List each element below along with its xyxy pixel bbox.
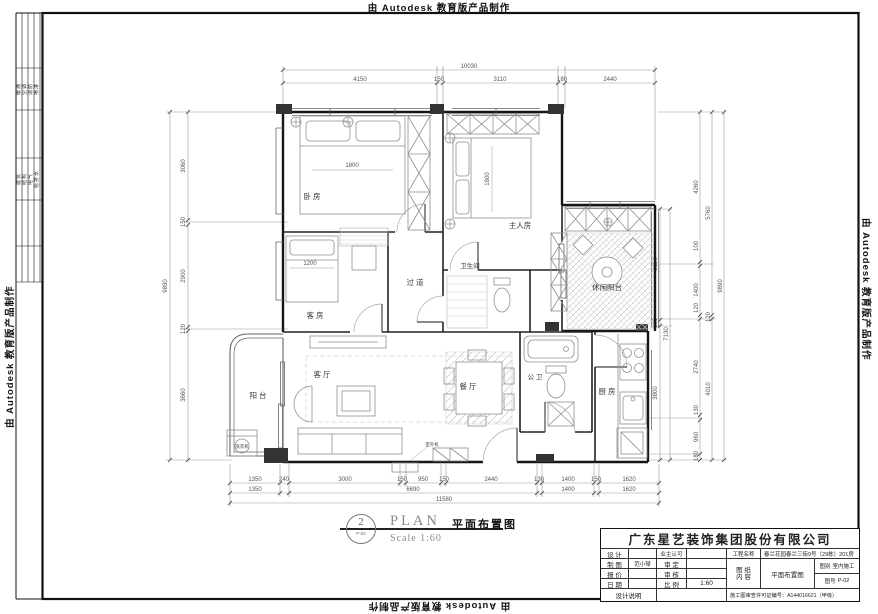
field-label: 设 计: [601, 549, 629, 559]
furniture-dim-lines: [290, 146, 492, 268]
field-value: 范小琴: [629, 559, 657, 569]
field-label: 比 例: [657, 579, 687, 589]
room-label-bedroom: 卧 房: [303, 191, 320, 201]
ac-outdoor-unit: [392, 447, 427, 472]
dim-text: 3660: [181, 388, 187, 402]
plan-title-scale: Scale 1:60: [390, 533, 442, 544]
field-label: 日 期: [601, 579, 629, 589]
drawing-content-label-line1: 图 纸: [736, 567, 751, 574]
room-label-kitchen: 厨 房: [598, 386, 615, 396]
dim-text: 1800: [345, 163, 359, 169]
room-label-guest: 客 房: [306, 310, 323, 320]
sheet-frame: [16, 13, 860, 599]
room-label-outdoor-unit: 室外机: [425, 441, 439, 448]
field-value: [629, 579, 657, 589]
kitchen-counter: [617, 334, 647, 458]
toilet-ensuite: [494, 278, 510, 312]
room-label-dining: 餐 厅: [459, 382, 477, 391]
dim-text: 10030: [461, 64, 478, 70]
tv-console: [310, 336, 386, 348]
dim-text: 1350: [248, 477, 262, 483]
drawing-content-value: 平面布置图: [761, 559, 815, 589]
field-value: [629, 549, 657, 559]
dim-text: 1350: [248, 487, 262, 493]
dim-text: 7130: [664, 327, 670, 341]
dim-text: 150: [434, 77, 445, 83]
field-value: [687, 569, 727, 579]
field-label: 业主认可: [657, 549, 687, 559]
room-label-public-bath: 公 卫: [528, 373, 543, 381]
drawing-content-label-line2: 内 容: [736, 574, 751, 581]
room-label-balcony: 阳 台: [249, 390, 266, 400]
dim-text: 2740: [694, 360, 700, 374]
dim-text: 3110: [494, 77, 508, 83]
drawing-number-bubble: 2 P-02: [346, 514, 376, 544]
plan-title-cn: 平面布置图: [452, 516, 517, 532]
toilet-public: [546, 366, 566, 398]
dim-text: 130: [694, 404, 700, 415]
field-label: 审 定: [657, 559, 687, 569]
field-value: [687, 549, 727, 559]
dim-text: 150: [439, 477, 450, 483]
wardrobe-master: [447, 114, 539, 134]
drawing-sheet: 由 Autodesk 教育版产品制作 由 Autodesk 教育版产品制作 由 …: [0, 0, 878, 614]
dim-text: 120: [694, 302, 700, 313]
dim-text: 2440: [484, 477, 498, 483]
design-notes-value: [657, 589, 727, 601]
sofa: [298, 428, 402, 454]
lounge-chair: [294, 386, 312, 422]
dim-text: 3060: [181, 159, 187, 173]
room-label-corridor: 过 道: [406, 277, 424, 287]
dim-text: 4260: [694, 180, 700, 194]
dim-text: 6690: [406, 487, 420, 493]
sheet-type-label: 图别: [819, 562, 830, 570]
dim-text: 1400: [561, 487, 575, 493]
drawing-number: 2: [347, 515, 375, 529]
project-name-value: 春兰花园春兰三街9号（29栋）201房: [761, 549, 859, 559]
dim-text: 240: [279, 477, 290, 483]
company-name: 广东星艺装饰集团股份有限公司: [601, 529, 859, 549]
dim-text: 4150: [353, 77, 367, 83]
dim-text: 1800: [485, 172, 491, 186]
dim-text: 100: [694, 240, 700, 251]
dim-text: 2440: [603, 77, 617, 83]
field-value: [629, 569, 657, 579]
dim-text: 1400: [561, 477, 575, 483]
dim-text: 150: [181, 216, 187, 227]
dim-text: 3800: [653, 386, 659, 400]
sheet-number-label: 图号: [825, 577, 836, 585]
field-label: 审 核: [657, 569, 687, 579]
wardrobe-bedroom: [408, 116, 430, 230]
guest-desk: [352, 246, 376, 270]
sheet-type-cell: 图别 室内施工: [815, 559, 859, 574]
plan-title-en: PLAN: [390, 513, 440, 530]
dim-text: 150: [397, 477, 408, 483]
dim-text: 180: [557, 77, 568, 83]
drawing-sheet-ref: P-02: [347, 529, 375, 539]
permit-number: 施工图审查许可证编号：A144016621（甲级）: [727, 589, 859, 601]
sheet-number-cell: 图号 P-02: [815, 574, 859, 589]
room-label-master: 主人房: [509, 220, 532, 230]
sheet-type-value: 室内施工: [833, 562, 855, 570]
project-name-label: 工程名称: [727, 549, 761, 559]
dim-text: 950: [418, 477, 429, 483]
dim-text: 9890: [718, 279, 724, 293]
dim-text: 3000: [338, 477, 352, 483]
dim-text: 4010: [706, 382, 712, 396]
dim-text: 1620: [622, 477, 636, 483]
dim-text: 120: [181, 323, 187, 334]
drawing-content-label: 图 纸 内 容: [727, 559, 761, 589]
dim-text: 150: [591, 477, 602, 483]
bed-guest: [286, 236, 338, 302]
room-label-leisure: 休闲阳台: [592, 282, 622, 292]
dim-text: 5760: [706, 206, 712, 220]
dim-text: 1620: [622, 487, 636, 493]
shoe-cabinet: [433, 448, 468, 461]
dim-text: 1400: [694, 283, 700, 297]
corner-basin: [548, 402, 574, 426]
dim-text: 960: [694, 431, 700, 442]
room-label-bath: 卫生间: [460, 261, 480, 270]
design-notes-label: 设计说明: [601, 589, 657, 601]
dim-text: 180: [694, 450, 700, 461]
dim-text: 1200: [303, 261, 317, 267]
coffee-table: [337, 386, 375, 416]
scale-value: 1:60: [687, 579, 727, 589]
dim-text: 120: [706, 311, 712, 322]
title-block: 广东星艺装饰集团股份有限公司 设 计 业主认可 制 图 范小琴 审 定 报 价 …: [600, 528, 860, 602]
sheet-number-value: P-02: [838, 578, 850, 584]
room-label-living: 客 厅: [313, 369, 331, 379]
dim-text: 2900: [181, 269, 187, 283]
field-label: 报 价: [601, 569, 629, 579]
bathtub: [524, 336, 578, 362]
dim-text: 11580: [436, 497, 453, 503]
dim-text: 130: [534, 477, 545, 483]
guest-desk-top: [340, 228, 388, 246]
room-label-washer: 洗衣机: [235, 443, 249, 450]
field-value: [687, 559, 727, 569]
dim-text: 9890: [163, 279, 169, 293]
field-label: 制 图: [601, 559, 629, 569]
